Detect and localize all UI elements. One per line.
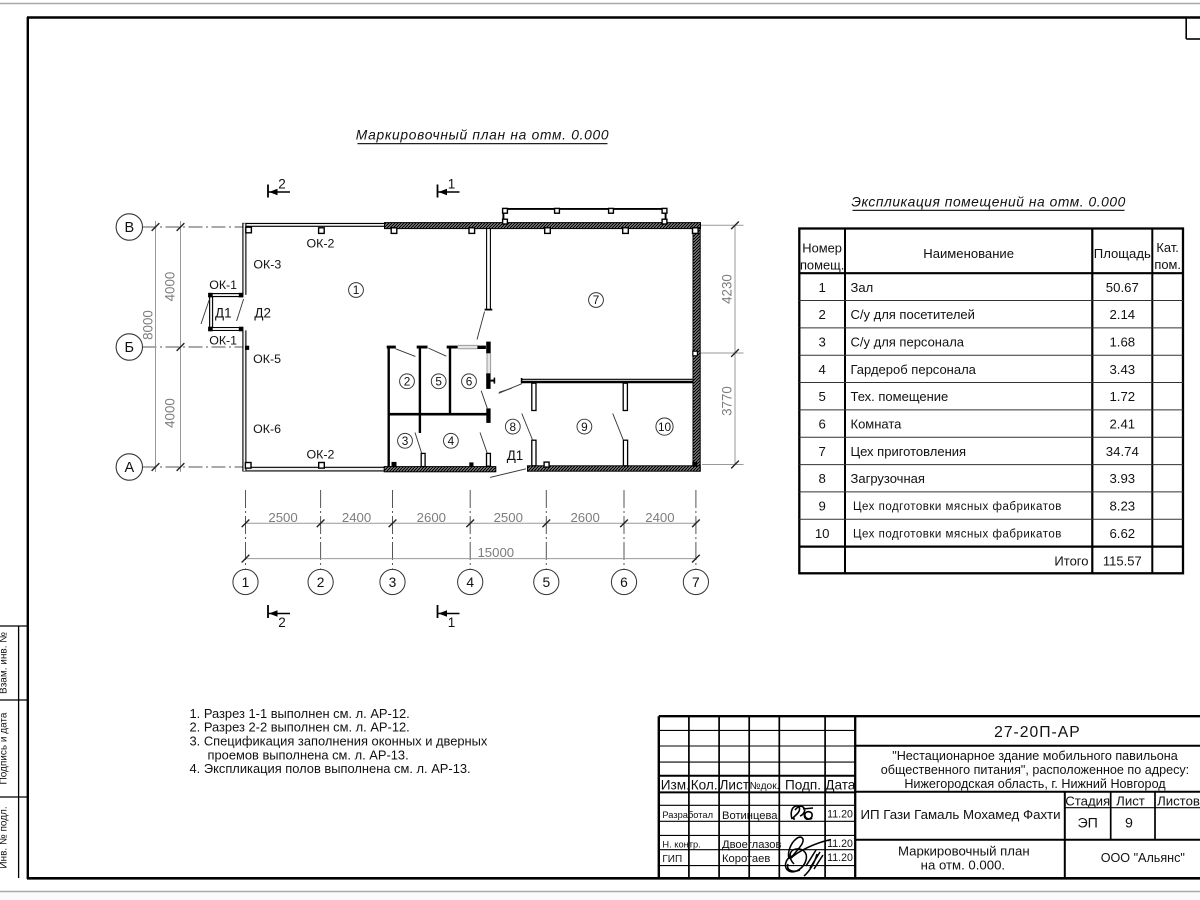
svg-text:10: 10	[658, 420, 672, 434]
svg-text:Н. контр.: Н. контр.	[662, 840, 700, 850]
svg-text:на отм. 0.000.: на отм. 0.000.	[921, 857, 1005, 872]
svg-text:Наименование: Наименование	[923, 246, 1014, 261]
svg-text:2: 2	[278, 615, 286, 630]
svg-text:Нижегородская область, г. Нижн: Нижегородская область, г. Нижний Новгоро…	[904, 777, 1166, 791]
svg-text:7: 7	[692, 575, 700, 590]
svg-text:1.68: 1.68	[1109, 334, 1135, 349]
svg-text:3. Спецификация заполнения око: 3. Спецификация заполнения оконных и две…	[190, 734, 488, 749]
svg-text:Д1: Д1	[215, 305, 232, 320]
svg-text:Кол.: Кол.	[691, 777, 718, 792]
svg-text:ОК-3: ОК-3	[253, 257, 281, 271]
svg-text:Подпись и дата: Подпись и дата	[0, 712, 10, 784]
svg-text:Разработал: Разработал	[662, 810, 713, 820]
svg-text:3.93: 3.93	[1109, 471, 1135, 486]
svg-text:3770: 3770	[720, 386, 735, 416]
svg-text:Загрузочная: Загрузочная	[851, 471, 925, 486]
svg-text:Кат.: Кат.	[1156, 240, 1178, 255]
svg-text:4000: 4000	[163, 272, 178, 302]
svg-text:ОК-2: ОК-2	[307, 447, 335, 461]
svg-text:6: 6	[818, 417, 825, 432]
svg-text:2400: 2400	[645, 510, 674, 525]
svg-text:Коротаев: Коротаев	[722, 853, 770, 865]
svg-text:6.62: 6.62	[1109, 526, 1135, 541]
svg-text:5: 5	[542, 575, 550, 590]
svg-text:11.20: 11.20	[827, 852, 853, 864]
svg-text:Номер: Номер	[802, 241, 842, 256]
svg-text:Листов: Листов	[1157, 794, 1200, 809]
svg-text:2: 2	[818, 307, 825, 322]
svg-text:Д1: Д1	[507, 448, 524, 463]
svg-text:5: 5	[435, 375, 442, 389]
svg-text:ЭП: ЭП	[1077, 816, 1097, 832]
svg-text:Б: Б	[125, 340, 135, 356]
svg-text:Лист: Лист	[720, 777, 750, 792]
svg-text:15000: 15000	[477, 545, 514, 560]
svg-text:3: 3	[402, 434, 409, 448]
svg-text:ОК-1: ОК-1	[209, 278, 237, 292]
svg-text:Подп.: Подп.	[785, 777, 821, 792]
svg-text:115.57: 115.57	[1103, 553, 1142, 568]
svg-text:8: 8	[818, 471, 825, 486]
svg-text:2: 2	[317, 575, 325, 590]
svg-text:2.14: 2.14	[1109, 307, 1135, 322]
svg-text:С/у для персонала: С/у для персонала	[851, 334, 965, 349]
svg-text:2. Разрез 2-2 выполнен см. л.: 2. Разрез 2-2 выполнен см. л. АР-12.	[190, 720, 410, 735]
svg-text:общественного питания", распол: общественного питания", расположенное по…	[881, 763, 1189, 777]
svg-text:ООО "Альянс": ООО "Альянс"	[1101, 851, 1185, 865]
svg-text:34.74: 34.74	[1106, 444, 1139, 459]
svg-text:Тех. помещение: Тех. помещение	[851, 389, 949, 404]
svg-text:27-20П-АР: 27-20П-АР	[994, 724, 1081, 741]
svg-text:ГИП: ГИП	[662, 854, 682, 865]
svg-text:3.43: 3.43	[1109, 362, 1135, 377]
svg-text:Взам. инв. №: Взам. инв. №	[0, 632, 10, 694]
svg-text:2: 2	[404, 375, 411, 389]
svg-text:4. Экспликация полов выполнена: 4. Экспликация полов выполнена см. л. АР…	[190, 761, 471, 776]
svg-text:10: 10	[815, 526, 830, 541]
svg-text:2500: 2500	[268, 510, 297, 525]
svg-text:9: 9	[581, 420, 588, 434]
svg-text:6: 6	[466, 375, 473, 389]
svg-text:Гардероб персонала: Гардероб персонала	[851, 362, 977, 377]
svg-text:Цех приготовления: Цех приготовления	[851, 444, 967, 459]
svg-text:Инв. № подл.: Инв. № подл.	[0, 806, 10, 868]
svg-text:Комната: Комната	[851, 417, 903, 432]
svg-text:"Нестационарное здание мобильн: "Нестационарное здание мобильного павиль…	[892, 749, 1178, 763]
svg-text:Вотинцева: Вотинцева	[722, 810, 778, 822]
svg-text:Дата: Дата	[825, 777, 856, 792]
svg-text:пом.: пом.	[1154, 257, 1181, 272]
svg-text:1: 1	[448, 177, 456, 192]
svg-text:Цех подготовки мясных фабрикат: Цех подготовки мясных фабрикатов	[853, 501, 1062, 513]
svg-text:4: 4	[448, 434, 455, 448]
svg-text:1: 1	[353, 283, 360, 297]
svg-text:4: 4	[466, 575, 474, 590]
svg-text:2.41: 2.41	[1109, 417, 1135, 432]
svg-text:проемов выполнена см. л. АР-13: проемов выполнена см. л. АР-13.	[208, 747, 409, 762]
svg-text:3: 3	[818, 334, 825, 349]
svg-text:1: 1	[448, 615, 456, 630]
svg-text:4230: 4230	[720, 274, 735, 304]
svg-text:9: 9	[818, 499, 825, 514]
svg-text:Итого: Итого	[1054, 553, 1088, 568]
svg-text:Лист: Лист	[1116, 794, 1145, 809]
svg-text:Двоеглазов: Двоеглазов	[722, 839, 782, 851]
svg-text:4000: 4000	[163, 398, 178, 428]
svg-text:2400: 2400	[342, 510, 371, 525]
svg-text:Изм.: Изм.	[661, 777, 690, 792]
svg-text:А: А	[124, 460, 134, 476]
svg-text:50.67: 50.67	[1106, 280, 1139, 295]
svg-text:1: 1	[242, 575, 250, 590]
svg-text:Стадия: Стадия	[1065, 794, 1110, 809]
svg-text:Экспликация помещений на отм.: Экспликация помещений на отм. 0.000	[851, 194, 1125, 209]
svg-text:2600: 2600	[570, 510, 599, 525]
svg-text:1.72: 1.72	[1109, 389, 1135, 404]
svg-text:11.20: 11.20	[827, 808, 853, 820]
svg-text:2: 2	[278, 177, 286, 192]
svg-text:7: 7	[593, 293, 600, 307]
svg-text:2500: 2500	[494, 510, 523, 525]
svg-text:Д2: Д2	[254, 305, 271, 320]
svg-text:В: В	[124, 220, 134, 236]
svg-text:помещ.: помещ.	[800, 258, 844, 273]
svg-text:2600: 2600	[417, 510, 446, 525]
svg-text:ИП Гази Гамаль Мохамед Фахти: ИП Гази Гамаль Мохамед Фахти	[860, 807, 1060, 822]
svg-text:5: 5	[818, 389, 825, 404]
svg-text:7: 7	[818, 444, 825, 459]
svg-text:ОК-1: ОК-1	[209, 333, 237, 347]
svg-text:Маркировочный план: Маркировочный план	[898, 844, 1030, 859]
svg-text:8000: 8000	[141, 310, 156, 340]
svg-text:ОК-2: ОК-2	[307, 237, 335, 251]
svg-text:3: 3	[389, 575, 397, 590]
svg-text:Цех подготовки мясных фабрикат: Цех подготовки мясных фабрикатов	[853, 528, 1062, 540]
svg-text:6: 6	[620, 575, 628, 590]
svg-text:ОК-5: ОК-5	[253, 352, 281, 366]
svg-text:С/у для посетителей: С/у для посетителей	[851, 307, 975, 322]
svg-text:1: 1	[818, 280, 825, 295]
svg-text:№док.: №док.	[750, 781, 780, 792]
svg-text:ОК-6: ОК-6	[253, 422, 281, 436]
svg-text:Зал: Зал	[851, 280, 874, 295]
svg-text:Маркировочный план на отм. 0.0: Маркировочный план на отм. 0.000	[356, 128, 610, 143]
svg-text:8: 8	[510, 420, 517, 434]
svg-text:Площадь: Площадь	[1094, 246, 1151, 261]
svg-text:8.23: 8.23	[1109, 499, 1135, 514]
svg-text:9: 9	[1125, 816, 1133, 832]
svg-text:4: 4	[818, 362, 825, 377]
